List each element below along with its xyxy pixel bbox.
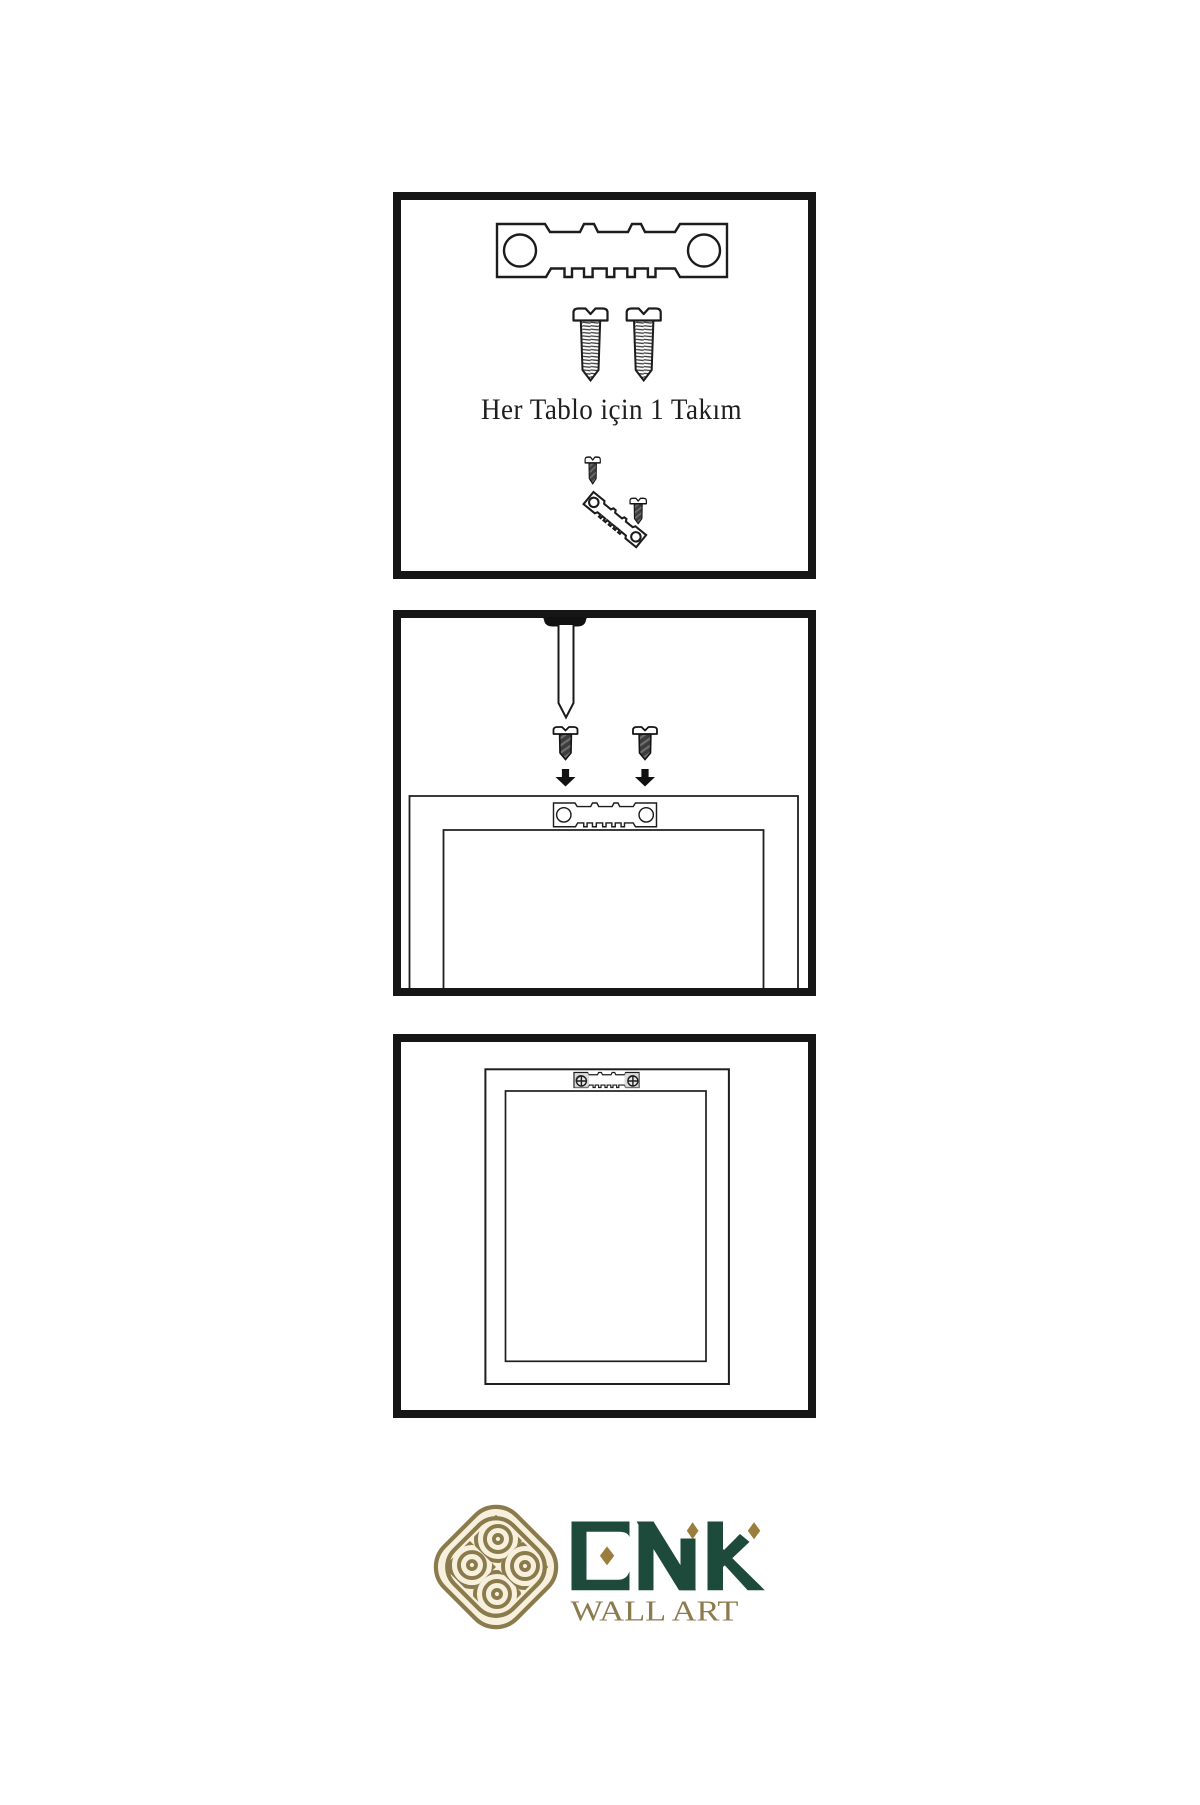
svg-text:WALL ART: WALL ART: [571, 1596, 739, 1628]
svg-text:Her Tablo için 1 Takım: Her Tablo için 1 Takım: [481, 394, 742, 426]
